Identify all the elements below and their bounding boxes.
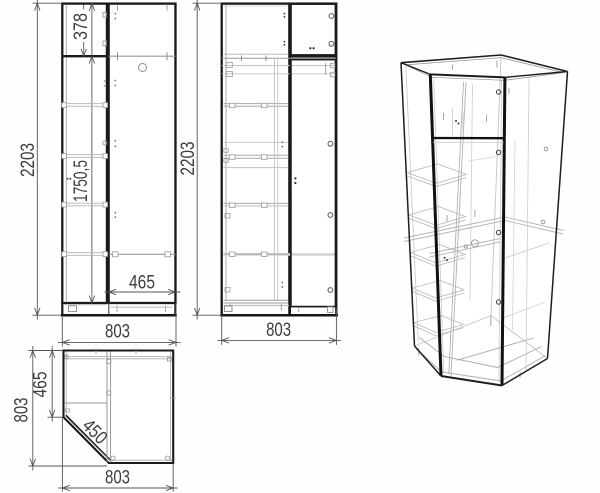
svg-text:378: 378 (71, 13, 92, 40)
svg-text:465: 465 (129, 273, 155, 294)
svg-text:2203: 2203 (178, 142, 199, 176)
svg-text:803: 803 (12, 398, 33, 423)
svg-text:803: 803 (266, 320, 291, 341)
svg-text:803: 803 (105, 468, 130, 489)
svg-text:803: 803 (105, 321, 130, 342)
svg-text:465: 465 (30, 372, 51, 398)
svg-text:1750,5: 1750,5 (71, 160, 92, 202)
svg-text:2203: 2203 (18, 143, 39, 177)
